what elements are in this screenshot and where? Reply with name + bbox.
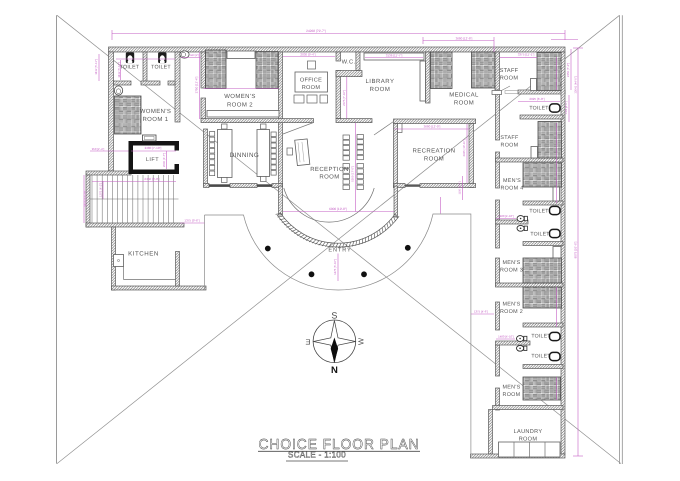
svg-text:ROOM: ROOM xyxy=(370,86,391,93)
svg-text:TOILET: TOILET xyxy=(529,208,549,214)
svg-text:ROOM 1: ROOM 1 xyxy=(142,116,168,123)
svg-text:2350 [7'-2"]: 2350 [7'-2"] xyxy=(566,63,570,77)
svg-text:SCALE - 1:100: SCALE - 1:100 xyxy=(288,450,346,460)
svg-text:STAFF: STAFF xyxy=(500,68,519,74)
svg-text:ROOM: ROOM xyxy=(454,100,474,107)
svg-text:5300 [17'-5"]: 5300 [17'-5"] xyxy=(351,166,355,182)
svg-text:24268 [79'-7"]: 24268 [79'-7"] xyxy=(306,29,326,33)
svg-text:TOILET: TOILET xyxy=(120,65,140,71)
svg-text:MEDICAL: MEDICAL xyxy=(449,92,479,99)
svg-text:3680 [12'-0"]: 3680 [12'-0"] xyxy=(424,125,441,129)
svg-text:ROOM 3: ROOM 3 xyxy=(500,268,523,274)
svg-text:ENTRY: ENTRY xyxy=(328,248,351,254)
svg-text:1475 [5'-10"]: 1475 [5'-10"] xyxy=(333,259,337,275)
svg-text:MEN'S: MEN'S xyxy=(502,385,520,391)
svg-text:ROOM 2: ROOM 2 xyxy=(227,102,253,109)
svg-text:ROOM: ROOM xyxy=(501,143,519,149)
svg-text:E: E xyxy=(305,338,310,347)
svg-text:STAFF: STAFF xyxy=(500,135,519,141)
svg-text:2075 [7'-10"]: 2075 [7'-10"] xyxy=(342,90,346,106)
svg-text:1480 [4'-10"]: 1480 [4'-10"] xyxy=(498,214,514,218)
svg-text:OFFICE: OFFICE xyxy=(300,78,322,84)
svg-text:TOILET: TOILET xyxy=(530,232,550,238)
svg-text:1150 [3'-9"]: 1150 [3'-9"] xyxy=(458,181,461,194)
svg-text:RECEPTION: RECEPTION xyxy=(310,166,349,173)
svg-text:1375 [9'-6"]: 1375 [9'-6"] xyxy=(184,219,199,223)
svg-text:2025 [6'-8"]: 2025 [6'-8"] xyxy=(529,97,544,101)
svg-text:8075 [26'-6"]: 8075 [26'-6"] xyxy=(574,241,578,258)
svg-text:1480 [4'-10"]: 1480 [4'-10"] xyxy=(498,335,514,339)
svg-text:S: S xyxy=(331,310,337,320)
svg-text:1275 [4'-2"]: 1275 [4'-2"] xyxy=(99,183,103,197)
svg-text:MEN'S: MEN'S xyxy=(502,302,520,308)
svg-text:1812 [5'-11"]: 1812 [5'-11"] xyxy=(117,62,121,78)
svg-text:W.C.: W.C. xyxy=(342,59,356,66)
svg-text:3750 [12'-4"]: 3750 [12'-4"] xyxy=(195,76,199,93)
svg-text:TOILET: TOILET xyxy=(531,354,551,360)
svg-text:3680 [12'-8"]: 3680 [12'-8"] xyxy=(456,36,473,40)
svg-text:LIFT: LIFT xyxy=(146,157,159,163)
svg-text:ROOM: ROOM xyxy=(302,85,321,91)
svg-text:13041 [44'-0"]: 13041 [44'-0"] xyxy=(573,76,577,93)
svg-text:WOMEN'S: WOMEN'S xyxy=(140,108,172,115)
svg-text:ROOM 2: ROOM 2 xyxy=(500,309,523,315)
svg-text:940 [2"]: 940 [2"] xyxy=(190,54,199,57)
svg-text:950 [2'-4"]: 950 [2'-4"] xyxy=(92,147,105,151)
svg-text:TOILET: TOILET xyxy=(151,65,171,71)
svg-text:ROOM: ROOM xyxy=(319,174,339,181)
svg-text:ROOM: ROOM xyxy=(500,76,519,82)
svg-text:1375 [4'-6"]: 1375 [4'-6"] xyxy=(474,310,488,314)
svg-text:6000 [19'-8"]: 6000 [19'-8"] xyxy=(329,207,347,211)
svg-text:2480 [7'-10"]: 2480 [7'-10"] xyxy=(145,146,162,150)
svg-text:3810 [12'-6"]: 3810 [12'-6"] xyxy=(84,191,88,207)
svg-text:RECREATION: RECREATION xyxy=(413,148,456,155)
svg-text:2030 [9'-4"]: 2030 [9'-4"] xyxy=(300,52,315,56)
svg-text:TOILET: TOILET xyxy=(531,334,551,340)
svg-text:1812 [5'-11"]: 1812 [5'-11"] xyxy=(94,59,98,75)
svg-text:MEN'S: MEN'S xyxy=(502,260,520,266)
svg-text:LIBRARY: LIBRARY xyxy=(365,78,394,85)
svg-text:3375 [11'-1"]: 3375 [11'-1"] xyxy=(518,53,535,57)
svg-text:ROOM 4: ROOM 4 xyxy=(500,186,523,192)
svg-text:KITCHEN: KITCHEN xyxy=(128,251,159,258)
svg-text:LAUNDRY: LAUNDRY xyxy=(514,429,543,435)
svg-text:DINNING: DINNING xyxy=(230,152,259,159)
svg-text:TOILET: TOILET xyxy=(529,106,549,112)
svg-text:N: N xyxy=(331,365,338,376)
svg-text:ROOM: ROOM xyxy=(424,156,444,163)
svg-text:2000 [6'-7"]: 2000 [6'-7"] xyxy=(162,153,166,167)
svg-text:2450 [8'-0"]: 2450 [8'-0"] xyxy=(144,177,159,181)
svg-text:ROOM: ROOM xyxy=(503,392,521,398)
svg-text:W: W xyxy=(357,337,366,345)
svg-text:WOMEN'S: WOMEN'S xyxy=(224,93,256,100)
svg-text:3136 [11'-7"]: 3136 [11'-7"] xyxy=(386,53,403,57)
svg-text:1.3M [4'-0"]: 1.3M [4'-0"] xyxy=(565,101,568,114)
svg-text:MEN'S: MEN'S xyxy=(503,178,521,184)
svg-text:3325 [10'-11"]: 3325 [10'-11"] xyxy=(462,139,466,156)
